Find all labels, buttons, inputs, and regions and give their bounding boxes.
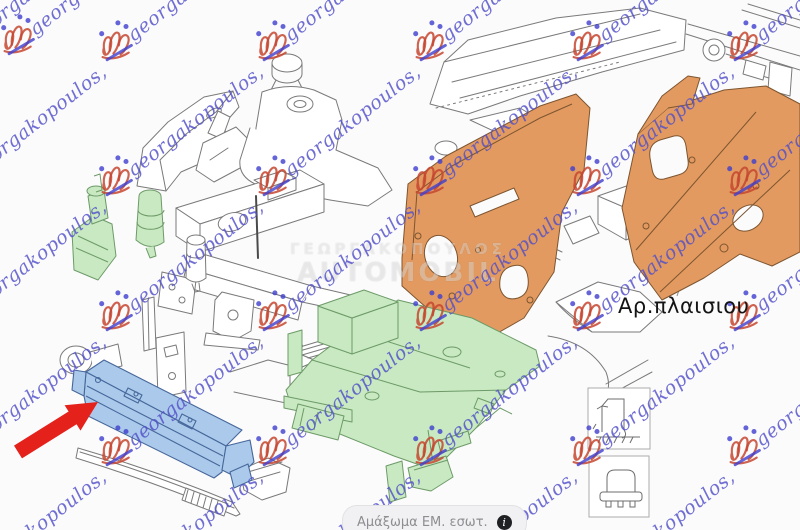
part-name-tooltip: Αμάξωμα ΕΜ. εσωτ. i [342, 505, 527, 530]
inset-mount-thumbnail[interactable] [589, 456, 649, 517]
inset-clip-thumbnail[interactable] [588, 388, 650, 449]
parts-diagram-page: ΓΕΩΡΓΑΚΟΠΟΥΛΟΣ AUTOMOBIL georgakopoulos,… [0, 0, 800, 530]
exploded-parts-drawing [0, 0, 800, 530]
part-name-text: Αμάξωμα ΕΜ. εσωτ. [357, 515, 488, 530]
chassis-number-label: Αρ.πλαισιου [618, 294, 749, 318]
info-icon[interactable]: i [497, 515, 512, 530]
